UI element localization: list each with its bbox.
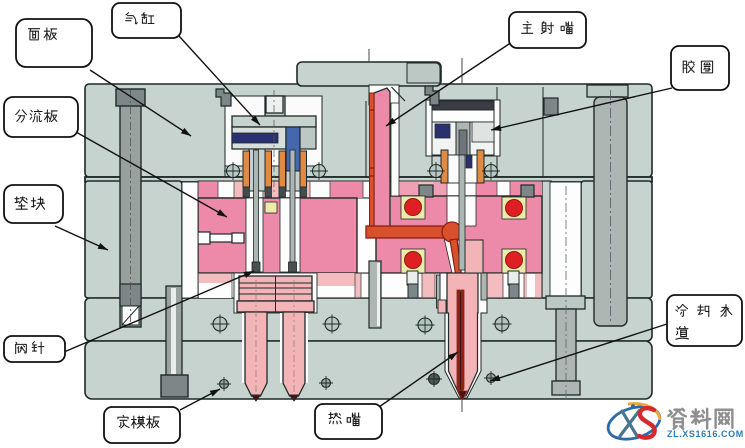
svg-text:ZL.XS1616.COM: ZL.XS1616.COM (667, 429, 744, 439)
